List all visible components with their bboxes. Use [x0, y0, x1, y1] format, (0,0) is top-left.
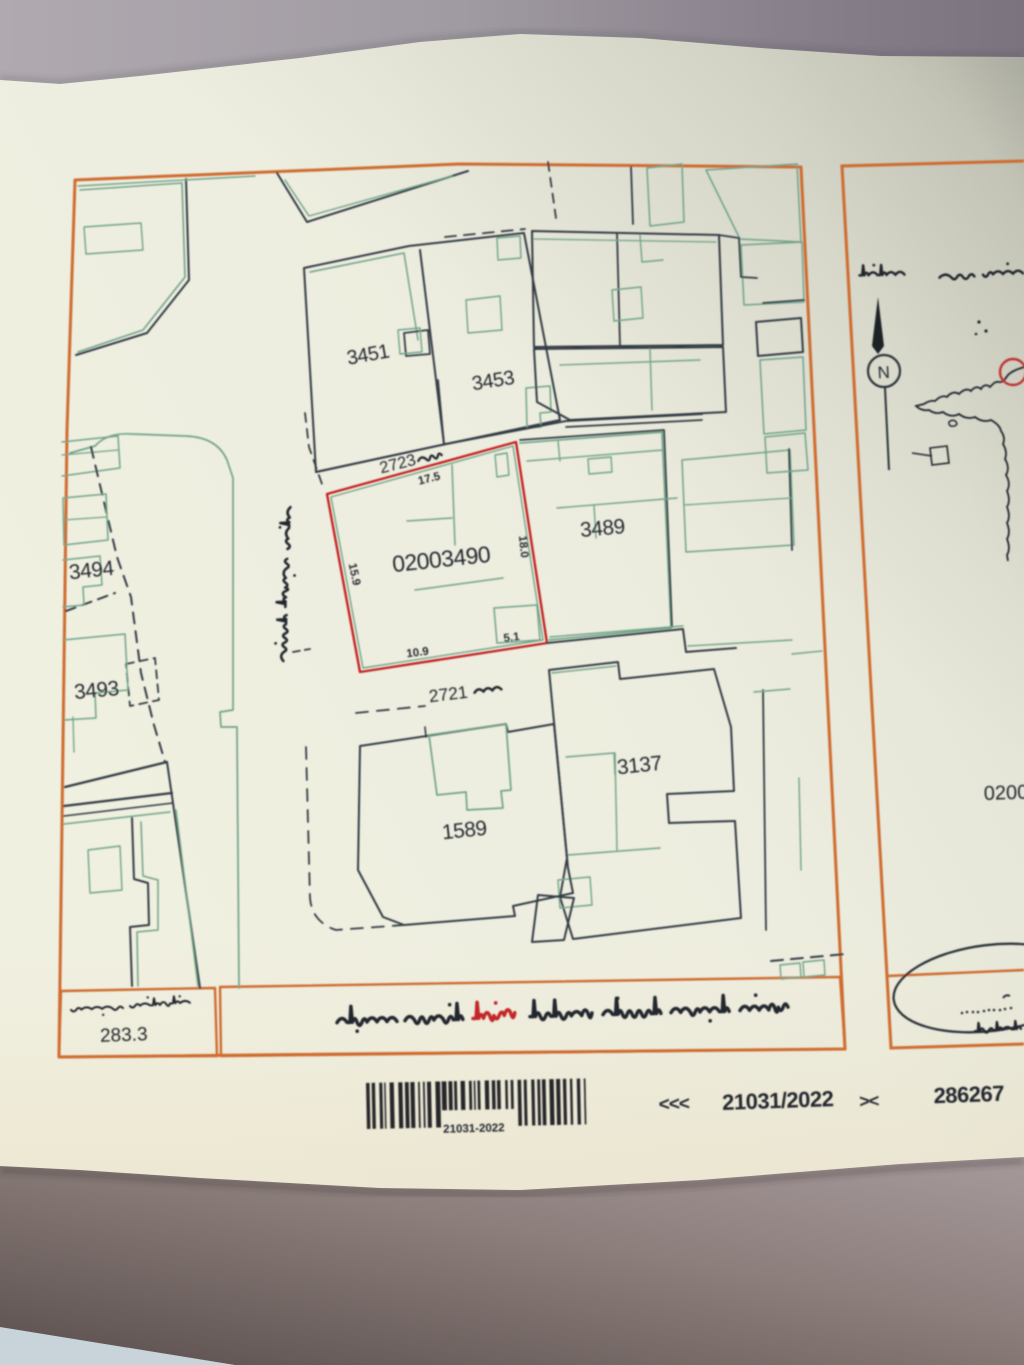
svg-text:3494: 3494 — [68, 557, 116, 585]
svg-text:3489: 3489 — [579, 515, 626, 542]
svg-text:21031-2022: 21031-2022 — [443, 1122, 505, 1135]
svg-text:3137: 3137 — [616, 752, 663, 780]
svg-text:020034: 020034 — [983, 781, 1024, 805]
svg-text:1589: 1589 — [441, 817, 488, 845]
svg-text:283.3: 283.3 — [100, 1024, 148, 1047]
svg-text:N: N — [877, 363, 890, 383]
svg-text:18.0: 18.0 — [516, 535, 530, 559]
svg-text:5.1: 5.1 — [503, 631, 521, 645]
svg-text:3493: 3493 — [73, 677, 120, 704]
svg-text:<<<: <<< — [658, 1093, 690, 1115]
svg-text:><: >< — [859, 1091, 879, 1112]
svg-text:286267: 286267 — [933, 1081, 1005, 1108]
svg-text:21031/2022: 21031/2022 — [722, 1086, 834, 1115]
